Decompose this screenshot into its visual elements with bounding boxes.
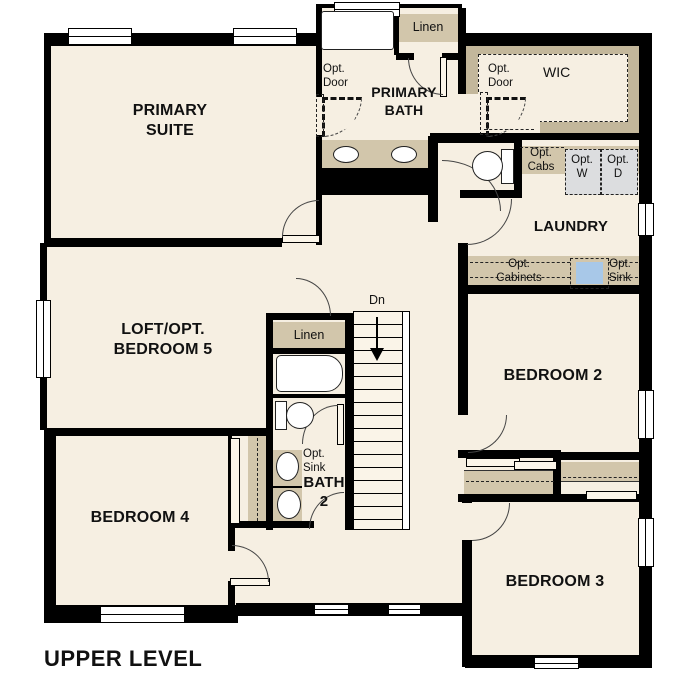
wall-bedroom3-west bbox=[462, 540, 472, 667]
label-opt-dryer: Opt. D bbox=[607, 153, 629, 182]
page-title: UPPER LEVEL bbox=[44, 645, 202, 673]
label-loft-line1: LOFT/OPT. bbox=[114, 320, 213, 340]
window-hall-2 bbox=[388, 604, 421, 615]
label-bath2-line2: 2 bbox=[303, 493, 344, 512]
wall-right bbox=[639, 33, 652, 668]
stairs-arrow-head bbox=[370, 348, 384, 361]
label-opt-cabinets: Opt. Cabinets bbox=[496, 257, 541, 286]
primary-toilet-bowl bbox=[472, 151, 503, 181]
label-opt-sink-bath2-line1: Opt. bbox=[303, 447, 325, 461]
bedroom4-closet-slider bbox=[230, 438, 240, 524]
label-opt-door-bath-line1: Opt. bbox=[323, 62, 348, 76]
label-opt-sink-bath2: Opt. Sink bbox=[303, 447, 325, 476]
bedroom2-closet-slider-b bbox=[514, 461, 557, 470]
wall-bedroom2-west bbox=[458, 294, 468, 415]
label-opt-sink-laundry-line1: Opt. bbox=[609, 257, 631, 271]
label-linen-upper: Linen bbox=[413, 20, 444, 36]
label-primary-suite: PRIMARY SUITE bbox=[133, 101, 208, 141]
primary-bathtub bbox=[321, 11, 394, 50]
window-bedroom2 bbox=[638, 390, 654, 439]
label-opt-door-bath: Opt. Door bbox=[323, 62, 348, 91]
opt-door-bath-leaf bbox=[316, 94, 324, 137]
label-opt-door-wic: Opt. Door bbox=[488, 62, 513, 91]
label-loft: LOFT/OPT. BEDROOM 5 bbox=[114, 320, 213, 360]
label-opt-door-wic-line2: Door bbox=[488, 76, 513, 90]
label-opt-washer-line2: W bbox=[571, 167, 593, 181]
label-laundry: LAUNDRY bbox=[534, 218, 608, 237]
bath2-toilet-bowl bbox=[286, 402, 314, 429]
label-opt-door-wic-line1: Opt. bbox=[488, 62, 513, 76]
bedroom3-closet-slider bbox=[586, 491, 637, 500]
label-bath2-line1: BATH bbox=[303, 474, 344, 493]
bedroom4-closet-dash bbox=[257, 438, 258, 521]
stairs-rail bbox=[402, 311, 410, 530]
label-opt-dryer-line1: Opt. bbox=[607, 153, 629, 167]
wall-tub2-nook-bottom bbox=[270, 394, 346, 398]
wall-bedroom3-closet-top bbox=[553, 452, 639, 460]
label-primary-suite-line1: PRIMARY bbox=[133, 101, 208, 121]
window-laundry bbox=[638, 203, 654, 236]
wall-bath2-bottom bbox=[228, 521, 314, 528]
upper-level-floor-plan: PRIMARY SUITE PRIMARY BATH Linen Opt. Do… bbox=[0, 0, 687, 687]
wall-bottom-hall bbox=[236, 603, 472, 616]
floor-bedroom3 bbox=[465, 605, 652, 655]
label-primary-bath-line1: PRIMARY bbox=[371, 84, 436, 102]
bedroom2-closet-dash bbox=[466, 481, 554, 482]
label-opt-cabs: Opt. Cabs bbox=[528, 146, 555, 175]
window-bedroom3-side bbox=[638, 518, 654, 567]
bedroom2-closet-shelf bbox=[464, 470, 555, 495]
label-opt-dryer-line2: D bbox=[607, 167, 629, 181]
primary-vanity-sink-1 bbox=[333, 146, 359, 163]
bedroom3-closet-dash bbox=[563, 477, 637, 478]
wall-left-upper bbox=[44, 33, 51, 243]
bath2-opt-sink bbox=[276, 452, 299, 481]
bedroom4-closet-shelf bbox=[248, 436, 268, 521]
label-bedroom4: BEDROOM 4 bbox=[91, 508, 190, 528]
window-loft bbox=[36, 300, 51, 378]
wic-vestibule-dash bbox=[484, 129, 534, 130]
bedroom3-closet-shelf bbox=[561, 462, 639, 482]
label-bath2: BATH 2 bbox=[303, 474, 344, 512]
window-hall-1 bbox=[314, 604, 349, 615]
label-opt-washer: Opt. W bbox=[571, 153, 593, 182]
wall-linen-east bbox=[458, 8, 466, 94]
opt-sink-laundry-basin bbox=[576, 262, 603, 284]
wall-bedroom3-west-stub bbox=[462, 495, 472, 503]
label-primary-suite-line2: SUITE bbox=[133, 121, 208, 141]
label-opt-cabs-line1: Opt. bbox=[528, 146, 555, 160]
label-stairs-dn: Dn bbox=[369, 293, 385, 309]
bath2-inner-door-leaf bbox=[337, 404, 344, 445]
bath2-bathtub bbox=[276, 355, 343, 392]
wall-loft-bottom bbox=[44, 428, 272, 436]
label-opt-sink-laundry: Opt. Sink bbox=[609, 257, 631, 286]
wall-stairs-bottom-stub bbox=[345, 523, 353, 530]
wall-top-right bbox=[458, 33, 652, 46]
stairs-treads bbox=[353, 311, 404, 530]
window-bedroom3-bottom bbox=[534, 657, 579, 669]
wall-suite-bottom bbox=[44, 238, 282, 247]
wall-bath2-west bbox=[266, 313, 273, 530]
wall-bedroom2-top bbox=[458, 285, 639, 294]
window-suite-2 bbox=[233, 28, 297, 45]
wall-linen-hall-bottom bbox=[270, 348, 346, 354]
label-opt-cabinets-line1: Opt. bbox=[496, 257, 541, 271]
primary-vanity-sink-2 bbox=[391, 146, 417, 163]
window-bedroom4 bbox=[100, 606, 185, 623]
label-opt-sink-laundry-line2: Sink bbox=[609, 271, 631, 285]
wall-toilet-room-west bbox=[428, 136, 438, 222]
stairs-arrow-line bbox=[376, 317, 378, 350]
wall-under-vanity bbox=[320, 168, 429, 195]
label-opt-cabs-line2: Cabs bbox=[528, 160, 555, 174]
wall-stairs-west bbox=[345, 313, 353, 523]
bath2-sink bbox=[277, 490, 301, 519]
wall-wic-bottom bbox=[520, 133, 639, 140]
label-primary-bath: PRIMARY BATH bbox=[371, 84, 436, 119]
label-opt-door-bath-line2: Door bbox=[323, 76, 348, 90]
window-suite-1 bbox=[68, 28, 132, 45]
label-opt-washer-line1: Opt. bbox=[571, 153, 593, 167]
label-bedroom2: BEDROOM 2 bbox=[504, 366, 603, 386]
label-bedroom3: BEDROOM 3 bbox=[506, 572, 605, 592]
label-opt-cabinets-line2: Cabinets bbox=[496, 271, 541, 285]
wall-bath2-vanity-divider bbox=[272, 486, 302, 488]
label-loft-line2: BEDROOM 5 bbox=[114, 340, 213, 360]
bedroom2-closet-slider-a bbox=[466, 458, 520, 467]
label-linen-hall: Linen bbox=[294, 328, 325, 344]
wall-bedroom2-closet-bottom bbox=[458, 494, 557, 502]
wall-toilet-room-top bbox=[430, 133, 522, 143]
label-primary-bath-line2: BATH bbox=[371, 102, 436, 120]
wall-left-bedroom4 bbox=[44, 430, 56, 623]
label-wic: WIC bbox=[543, 64, 570, 82]
